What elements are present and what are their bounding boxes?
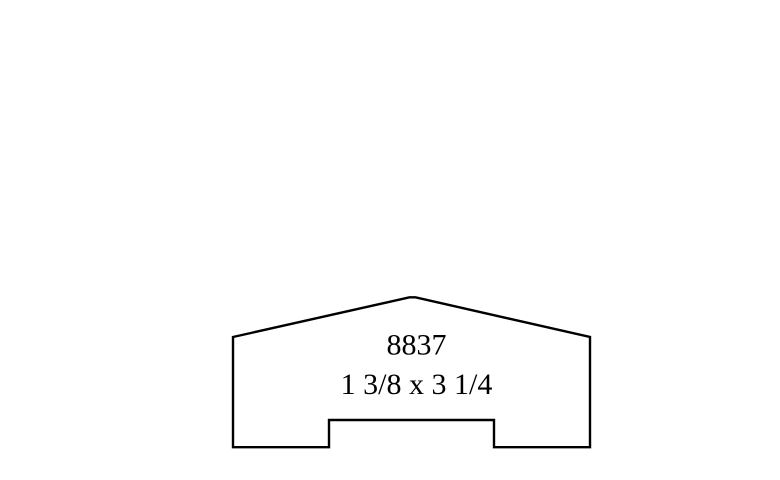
svg-text:8837: 8837 [387,329,447,362]
svg-text:1 3/8 x 3 1/4: 1 3/8 x 3 1/4 [341,368,493,401]
